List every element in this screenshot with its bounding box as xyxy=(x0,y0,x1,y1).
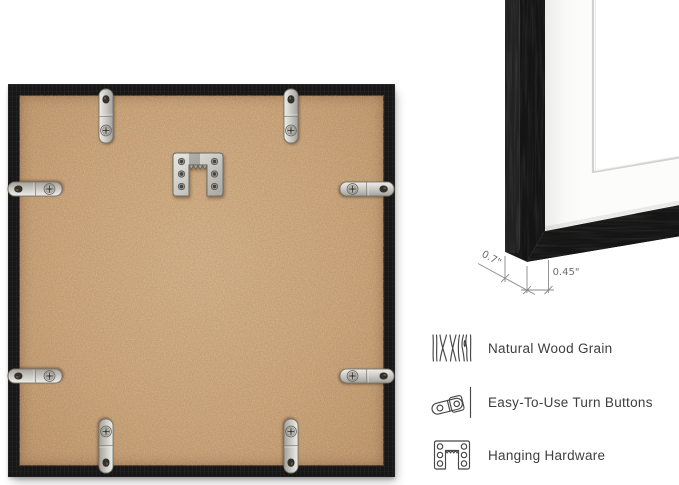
mat-board xyxy=(545,0,679,232)
feature-label: Natural Wood Grain xyxy=(488,341,612,356)
turn-button-top-left xyxy=(97,88,115,144)
mdf-texture xyxy=(19,95,384,466)
sawtooth-hanger xyxy=(172,152,224,197)
hanging-hardware-icon xyxy=(430,438,474,472)
turn-button-right-top xyxy=(339,180,395,198)
frame-back-view xyxy=(8,84,395,477)
turn-button-top-right xyxy=(282,88,300,144)
product-image-canvas: 0.7" 0.45" Natural Wood Grain xyxy=(0,0,679,485)
dimension-width-label: 0.45" xyxy=(553,267,580,278)
mat-opening xyxy=(593,0,679,172)
turn-button-left-bottom xyxy=(7,367,63,385)
turn-button-bottom-left xyxy=(97,418,115,474)
turn-button-icon xyxy=(430,384,474,420)
feature-row-wood-grain: Natural Wood Grain xyxy=(430,332,612,364)
frame-corner-closeup: 0.7" 0.45" xyxy=(430,0,679,300)
frame-side-profile xyxy=(505,0,545,262)
turn-button-left-top xyxy=(7,180,63,198)
feature-row-hanging-hardware: Hanging Hardware xyxy=(430,437,605,473)
mdf-backing xyxy=(19,95,384,466)
turn-button-right-bottom xyxy=(339,367,395,385)
wood-grain-icon xyxy=(430,333,474,363)
dimension-depth-label: 0.7" xyxy=(480,249,503,269)
feature-label: Hanging Hardware xyxy=(488,448,605,463)
feature-label: Easy-To-Use Turn Buttons xyxy=(488,395,653,410)
feature-row-turn-buttons: Easy-To-Use Turn Buttons xyxy=(430,384,653,420)
turn-button-bottom-right xyxy=(282,418,300,474)
